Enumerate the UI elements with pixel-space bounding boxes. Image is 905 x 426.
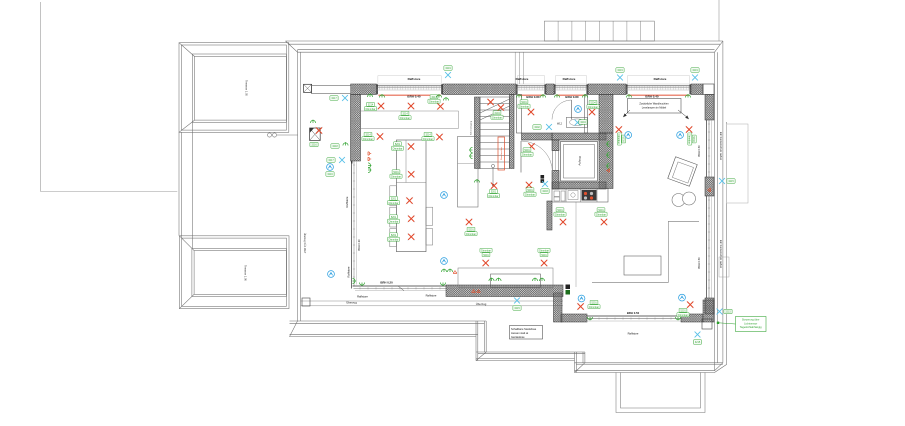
svg-text:Dimmbar: Dimmbar — [617, 134, 620, 144]
svg-text:Dimmbar: Dimmbar — [522, 153, 532, 156]
svg-text:Dimmbar: Dimmbar — [429, 100, 439, 103]
svg-text:3219: 3219 — [617, 69, 623, 72]
svg-text:Rauchmelder: Rauchmelder — [500, 147, 503, 160]
svg-text:5201: 5201 — [591, 301, 597, 304]
svg-text:5201: 5201 — [680, 309, 686, 312]
svg-text:5201: 5201 — [395, 143, 401, 146]
svg-text:Raffstore: Raffstore — [516, 77, 529, 81]
svg-text:3219: 3219 — [445, 67, 451, 70]
svg-text:5201: 5201 — [391, 197, 397, 200]
svg-text:Dimmbar: Dimmbar — [555, 213, 565, 216]
svg-text:BRH 0.50: BRH 0.50 — [627, 311, 640, 315]
svg-text:3214: 3214 — [402, 112, 408, 115]
svg-text:Dimmbar: Dimmbar — [389, 202, 399, 205]
svg-text:Terrasse 1.06: Terrasse 1.06 — [244, 265, 248, 281]
svg-text:Dimmbar: Dimmbar — [596, 213, 606, 216]
svg-text:5203: 5203 — [692, 136, 695, 142]
svg-text:5201: 5201 — [527, 189, 533, 192]
svg-text:Dimmbar: Dimmbar — [466, 233, 476, 236]
svg-text:BRH 0.30: BRH 0.30 — [357, 239, 361, 251]
svg-text:BRH 0.80: BRH 0.80 — [526, 95, 540, 99]
svg-text:Dimmbar: Dimmbar — [525, 193, 535, 196]
svg-text:5201: 5201 — [598, 209, 604, 212]
svg-text:3217: 3217 — [331, 97, 337, 100]
svg-text:Dimmbar: Dimmbar — [481, 249, 491, 252]
svg-text:Dimmbar: Dimmbar — [391, 175, 401, 178]
svg-text:Raffstore: Raffstore — [654, 77, 667, 81]
svg-text:3217: 3217 — [328, 159, 334, 162]
svg-text:Gerätedose: Gerätedose — [511, 335, 525, 339]
svg-text:3215: 3215 — [514, 307, 520, 310]
svg-text:Zusätzliche Wandleuchten: Zusätzliche Wandleuchten — [639, 102, 669, 105]
svg-text:BRH 0.50: BRH 0.50 — [697, 145, 701, 157]
svg-text:5201: 5201 — [521, 101, 527, 104]
svg-text:Überzug: Überzug — [346, 301, 357, 305]
svg-text:Tageslichtabhängig: Tageslichtabhängig — [740, 325, 762, 329]
svg-text:3214: 3214 — [365, 133, 371, 136]
svg-text:3219: 3219 — [692, 69, 698, 72]
svg-text:Aussen statt at: Aussen statt at — [511, 331, 528, 335]
svg-text:Dimmbar: Dimmbar — [393, 147, 403, 150]
svg-text:Raffstore: Raffstore — [347, 266, 351, 277]
svg-text:3104: 3104 — [494, 112, 500, 115]
svg-text:5203: 5203 — [622, 136, 625, 142]
svg-text:Überzug: Überzug — [476, 302, 487, 306]
svg-text:Raffstore: Raffstore — [563, 77, 576, 81]
svg-text:Dimmbar: Dimmbar — [400, 117, 410, 120]
svg-text:3214: 3214 — [368, 103, 374, 106]
svg-text:5201: 5201 — [391, 216, 397, 219]
svg-text:5204: 5204 — [590, 101, 596, 104]
svg-text:5201: 5201 — [483, 254, 489, 257]
svg-text:BRH 0.80: BRH 0.80 — [565, 95, 579, 99]
svg-text:Dimmbar: Dimmbar — [588, 106, 598, 109]
svg-text:Dimmbar: Dimmbar — [519, 105, 529, 108]
svg-text:Dimmbar: Dimmbar — [492, 116, 502, 119]
svg-text:Schaltbare Steckdose: Schaltbare Steckdose — [511, 327, 537, 331]
svg-text:Raffstore: Raffstore — [345, 196, 349, 207]
svg-text:Raffstore: Raffstore — [628, 332, 639, 336]
svg-text:3216: 3216 — [327, 173, 333, 176]
svg-text:5201: 5201 — [491, 190, 497, 193]
svg-text:3215: 3215 — [728, 180, 734, 183]
svg-text:Dimmbar: Dimmbar — [389, 220, 399, 223]
svg-text:Dimmbar: Dimmbar — [389, 238, 399, 241]
svg-text:Dimmbar: Dimmbar — [489, 195, 499, 198]
svg-text:Terrasse 1.05: Terrasse 1.05 — [245, 80, 249, 96]
svg-text:3203: 3203 — [542, 190, 548, 193]
svg-text:3215: 3215 — [695, 341, 701, 344]
svg-text:5201: 5201 — [541, 254, 547, 257]
svg-text:Raffstore: Raffstore — [426, 293, 437, 297]
svg-text:3204: 3204 — [580, 121, 586, 124]
svg-text:3216: 3216 — [311, 144, 317, 147]
svg-text:Dimmbar: Dimmbar — [688, 134, 691, 144]
svg-text:Dimmbar: Dimmbar — [678, 314, 688, 317]
svg-text:Dimmbar: Dimmbar — [539, 249, 549, 252]
svg-text:kalt Sonnenschutz außen: kalt Sonnenschutz außen — [719, 240, 722, 269]
svg-text:Dimmbar: Dimmbar — [366, 108, 376, 111]
svg-text:Nebeneingang: Nebeneingang — [471, 120, 473, 135]
svg-text:Lichtsensor: Lichtsensor — [744, 321, 757, 325]
svg-text:5201: 5201 — [393, 171, 399, 174]
svg-text:5201: 5201 — [391, 234, 397, 237]
svg-text:Leselampen im Möbel: Leselampen im Möbel — [642, 107, 667, 110]
svg-text:Raffstore: Raffstore — [408, 77, 421, 81]
svg-text:BRH 0.40: BRH 0.40 — [407, 95, 421, 99]
svg-text:5201: 5201 — [468, 228, 474, 231]
svg-text:5201: 5201 — [524, 149, 530, 152]
svg-text:Dimmbar: Dimmbar — [363, 138, 373, 141]
svg-text:5201: 5201 — [557, 209, 563, 212]
svg-text:kalt Sonnenschutz außen: kalt Sonnenschutz außen — [719, 132, 722, 161]
svg-text:3218: 3218 — [332, 145, 338, 148]
svg-text:BRH 0.50: BRH 0.50 — [697, 257, 701, 269]
svg-text:3214: 3214 — [425, 133, 431, 136]
svg-text:3215: 3215 — [725, 311, 731, 314]
svg-text:Dimmbar: Dimmbar — [423, 138, 433, 141]
svg-text:Überzug DÜ4 26x7: Überzug DÜ4 26x7 — [303, 233, 306, 254]
svg-text:Raffstore: Raffstore — [357, 295, 368, 299]
svg-text:Dimmbar: Dimmbar — [589, 306, 599, 309]
svg-text:WL2: WL2 — [557, 122, 563, 125]
svg-text:Aufzug: Aufzug — [578, 156, 582, 166]
svg-text:BRH 0.20: BRH 0.20 — [380, 280, 393, 284]
svg-text:Steuerung über: Steuerung über — [742, 318, 760, 322]
svg-text:3202: 3202 — [534, 126, 540, 129]
svg-text:BRH 0.40: BRH 0.40 — [645, 95, 659, 99]
